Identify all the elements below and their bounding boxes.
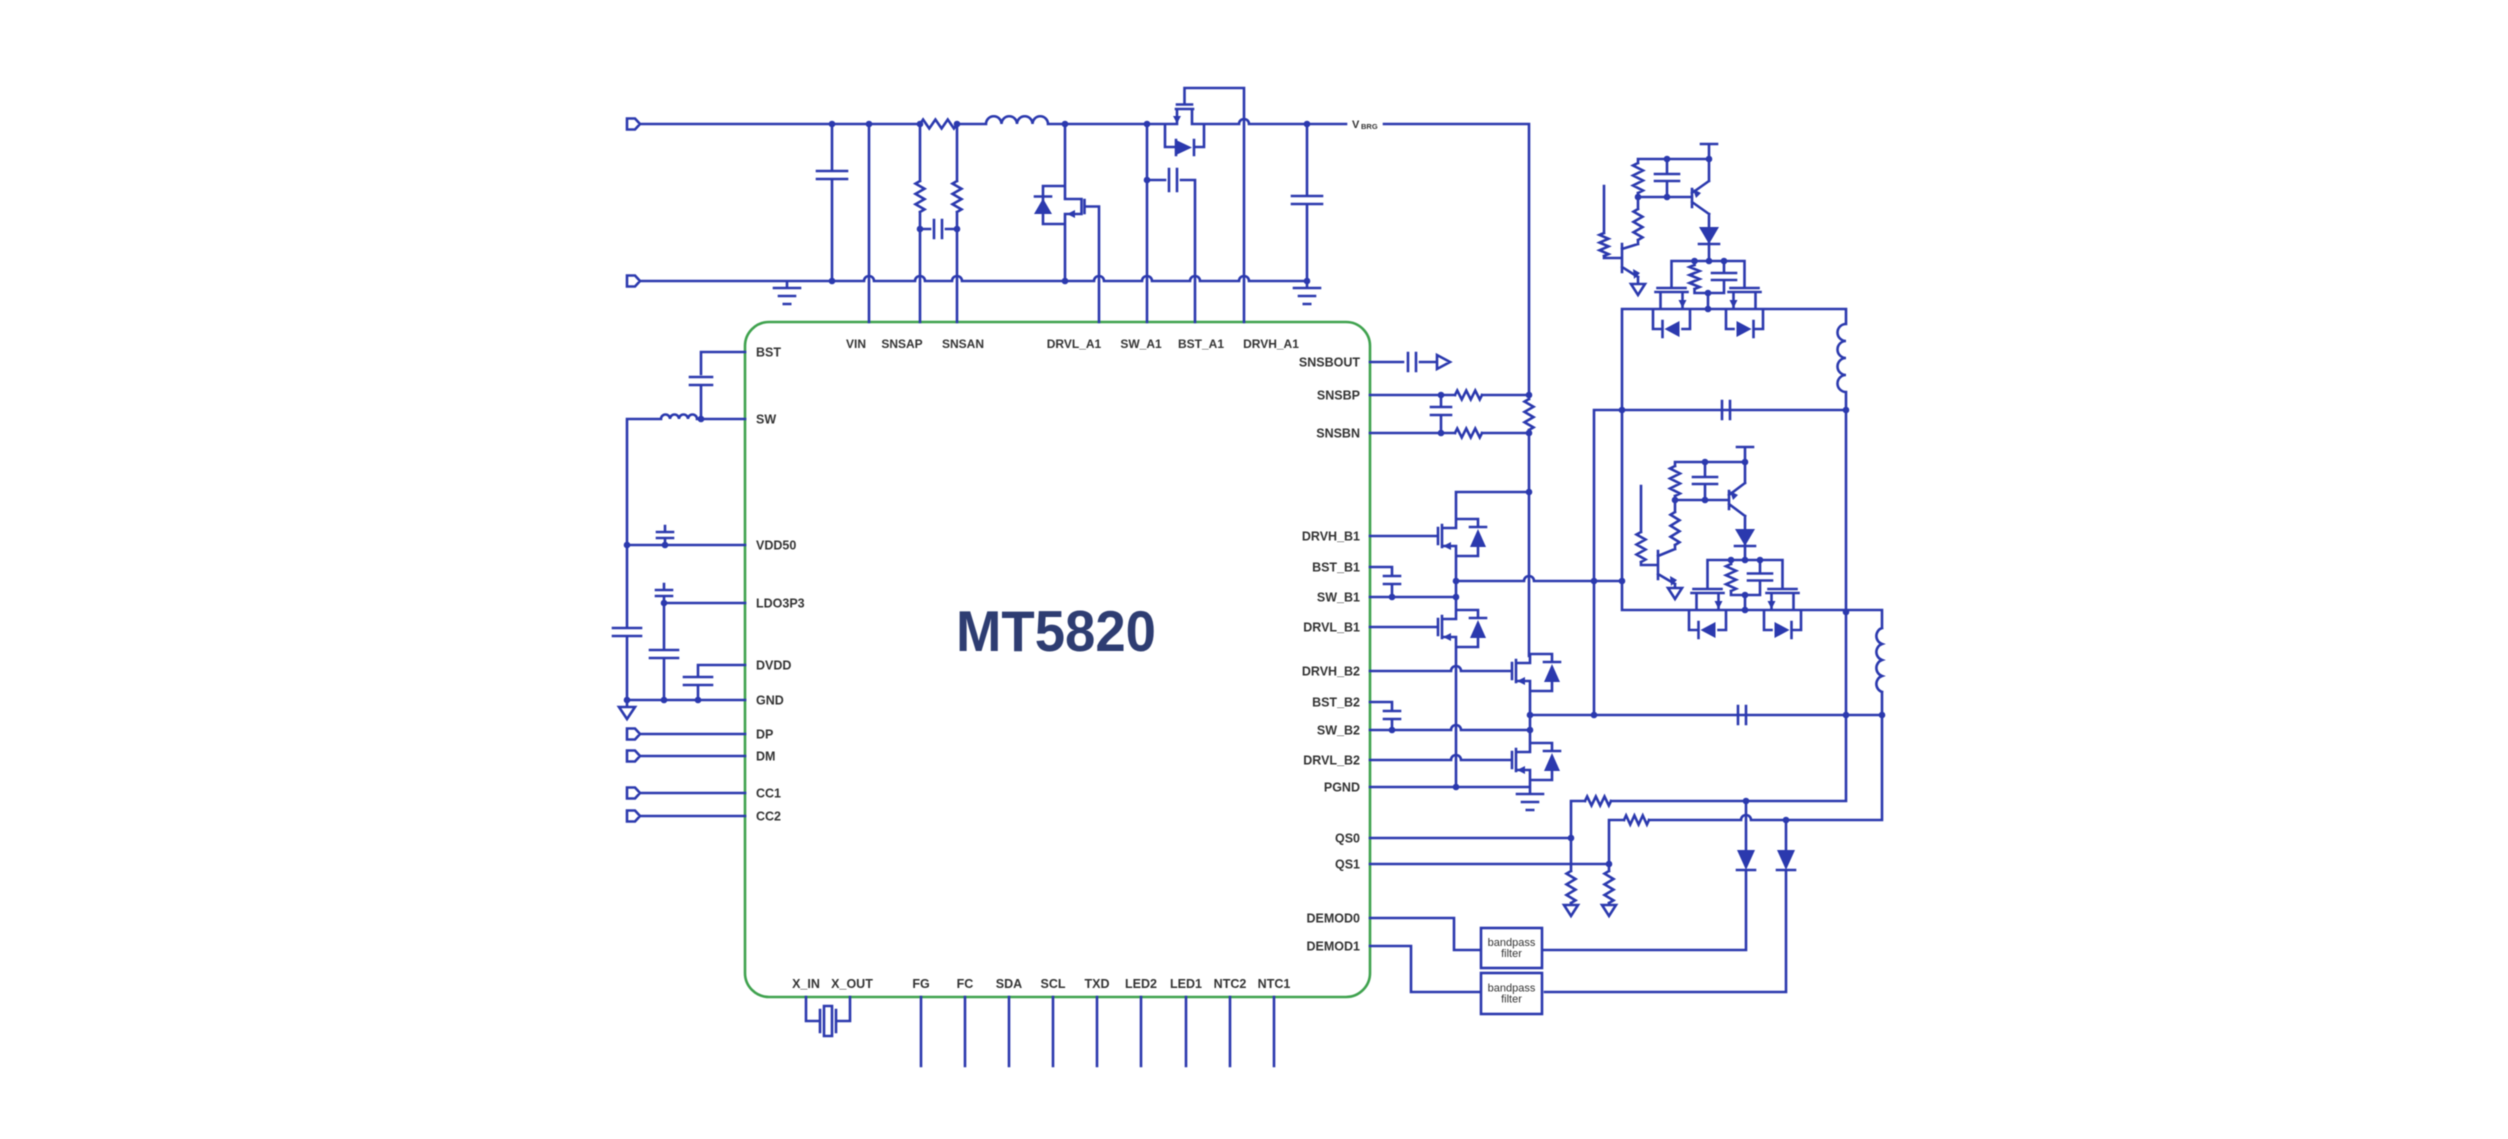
svg-text:BST_B2: BST_B2 xyxy=(1312,696,1360,710)
svg-text:BRG: BRG xyxy=(1361,122,1378,131)
svg-text:DRVL_A1: DRVL_A1 xyxy=(1047,337,1102,351)
svg-text:DRVH_A1: DRVH_A1 xyxy=(1243,337,1299,351)
svg-text:BST: BST xyxy=(756,346,781,360)
svg-text:SNSAN: SNSAN xyxy=(942,337,984,351)
svg-text:SW: SW xyxy=(756,413,776,427)
svg-text:NTC1: NTC1 xyxy=(1258,977,1291,991)
svg-text:BST_A1: BST_A1 xyxy=(1178,337,1224,351)
svg-text:SW_A1: SW_A1 xyxy=(1120,337,1162,351)
svg-text:QS0: QS0 xyxy=(1335,832,1360,846)
svg-text:QS1: QS1 xyxy=(1335,858,1360,872)
svg-text:DEMOD0: DEMOD0 xyxy=(1307,912,1361,926)
svg-text:MT5820: MT5820 xyxy=(956,600,1156,664)
svg-text:LED1: LED1 xyxy=(1170,977,1202,991)
svg-text:SNSBN: SNSBN xyxy=(1316,427,1360,441)
svg-text:VDD50: VDD50 xyxy=(756,539,796,553)
svg-text:DM: DM xyxy=(756,750,775,764)
svg-text:filter: filter xyxy=(1501,994,1522,1006)
svg-text:SW_B2: SW_B2 xyxy=(1317,724,1360,738)
svg-text:DRVH_B2: DRVH_B2 xyxy=(1302,665,1360,679)
svg-text:X_OUT: X_OUT xyxy=(831,977,873,991)
svg-text:filter: filter xyxy=(1501,948,1522,960)
svg-text:DRVL_B1: DRVL_B1 xyxy=(1303,621,1360,635)
svg-text:SNSAP: SNSAP xyxy=(881,337,922,351)
svg-text:CC2: CC2 xyxy=(756,810,781,824)
svg-text:VIN: VIN xyxy=(846,337,866,351)
svg-text:DRVL_B2: DRVL_B2 xyxy=(1303,754,1360,768)
svg-text:SCL: SCL xyxy=(1041,977,1066,991)
svg-text:PGND: PGND xyxy=(1324,781,1360,795)
svg-text:SNSBOUT: SNSBOUT xyxy=(1299,356,1360,370)
svg-text:X_IN: X_IN xyxy=(792,977,820,991)
svg-text:CC1: CC1 xyxy=(756,787,781,801)
svg-text:FG: FG xyxy=(912,977,929,991)
svg-text:DRVH_B1: DRVH_B1 xyxy=(1302,530,1360,544)
svg-text:BST_B1: BST_B1 xyxy=(1312,561,1360,575)
svg-text:TXD: TXD xyxy=(1085,977,1110,991)
svg-text:LED2: LED2 xyxy=(1125,977,1157,991)
svg-text:FC: FC xyxy=(957,977,974,991)
svg-text:GND: GND xyxy=(756,694,784,708)
svg-text:NTC2: NTC2 xyxy=(1214,977,1247,991)
svg-text:DEMOD1: DEMOD1 xyxy=(1307,940,1361,954)
svg-text:LDO3P3: LDO3P3 xyxy=(756,597,805,611)
svg-text:DVDD: DVDD xyxy=(756,659,791,673)
svg-text:SNSBP: SNSBP xyxy=(1317,389,1360,403)
svg-text:SDA: SDA xyxy=(996,977,1022,991)
svg-text:SW_B1: SW_B1 xyxy=(1317,591,1360,605)
svg-text:DP: DP xyxy=(756,728,773,742)
svg-text:V: V xyxy=(1352,119,1360,131)
